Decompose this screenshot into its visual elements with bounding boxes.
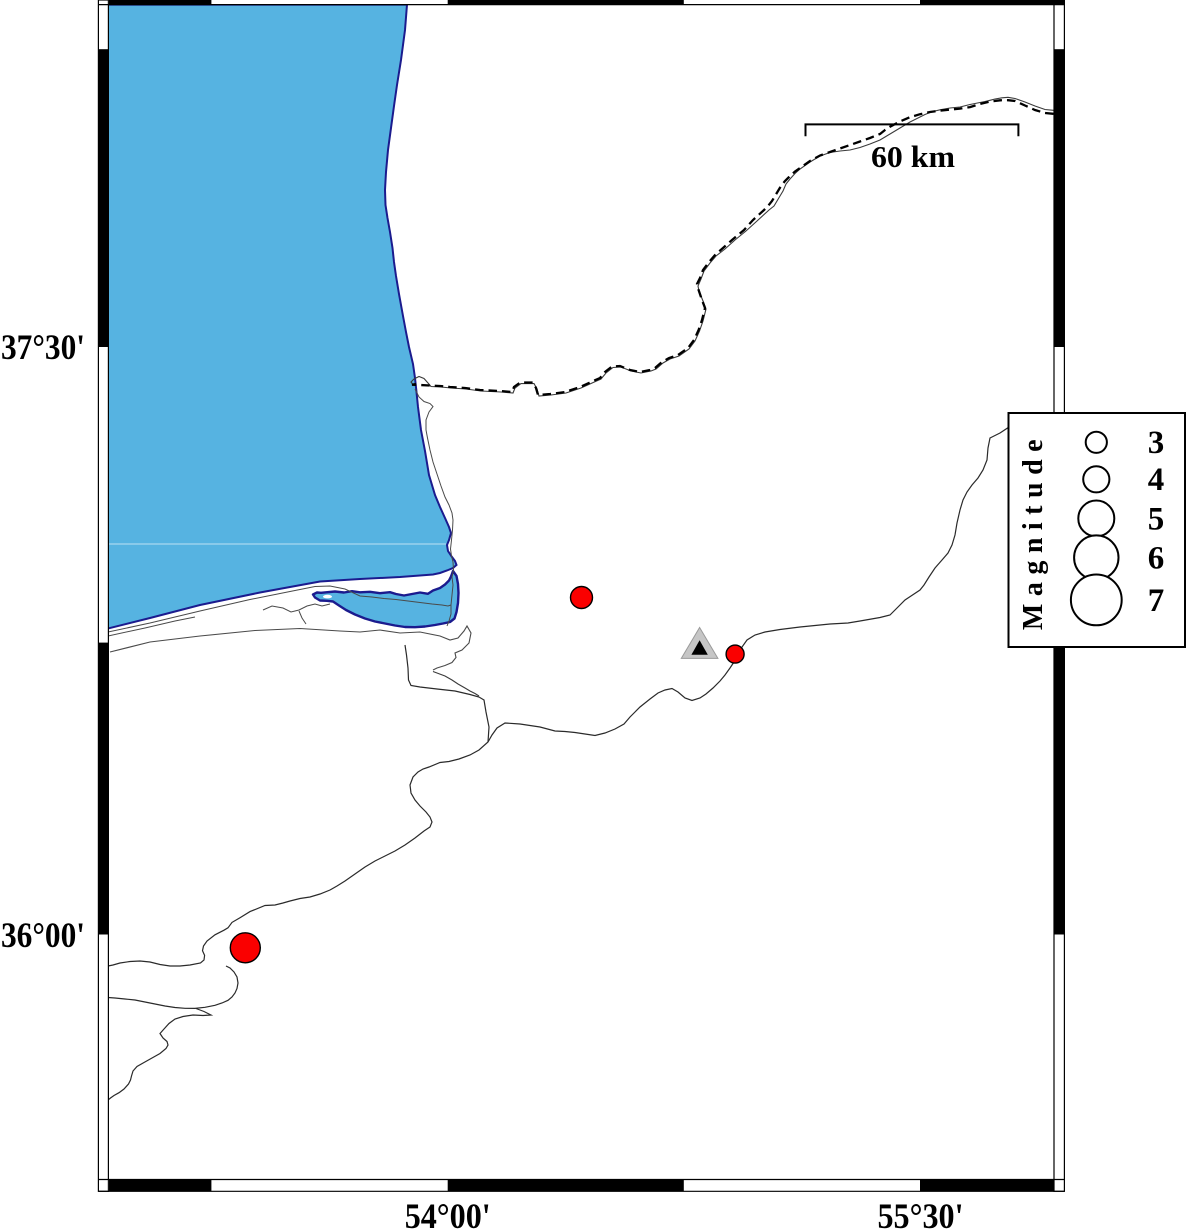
svg-text:Magnitude: Magnitude bbox=[1018, 432, 1049, 630]
svg-text:36°00': 36°00' bbox=[1, 915, 85, 955]
svg-text:54°00': 54°00' bbox=[405, 1196, 491, 1229]
svg-text:60 km: 60 km bbox=[871, 139, 955, 174]
svg-text:6: 6 bbox=[1148, 541, 1165, 577]
svg-text:55°30': 55°30' bbox=[878, 1196, 964, 1229]
svg-text:4: 4 bbox=[1148, 462, 1165, 498]
svg-text:37°30': 37°30' bbox=[1, 327, 85, 367]
svg-text:5: 5 bbox=[1148, 502, 1165, 538]
svg-text:7: 7 bbox=[1148, 583, 1165, 619]
svg-text:3: 3 bbox=[1148, 425, 1165, 461]
